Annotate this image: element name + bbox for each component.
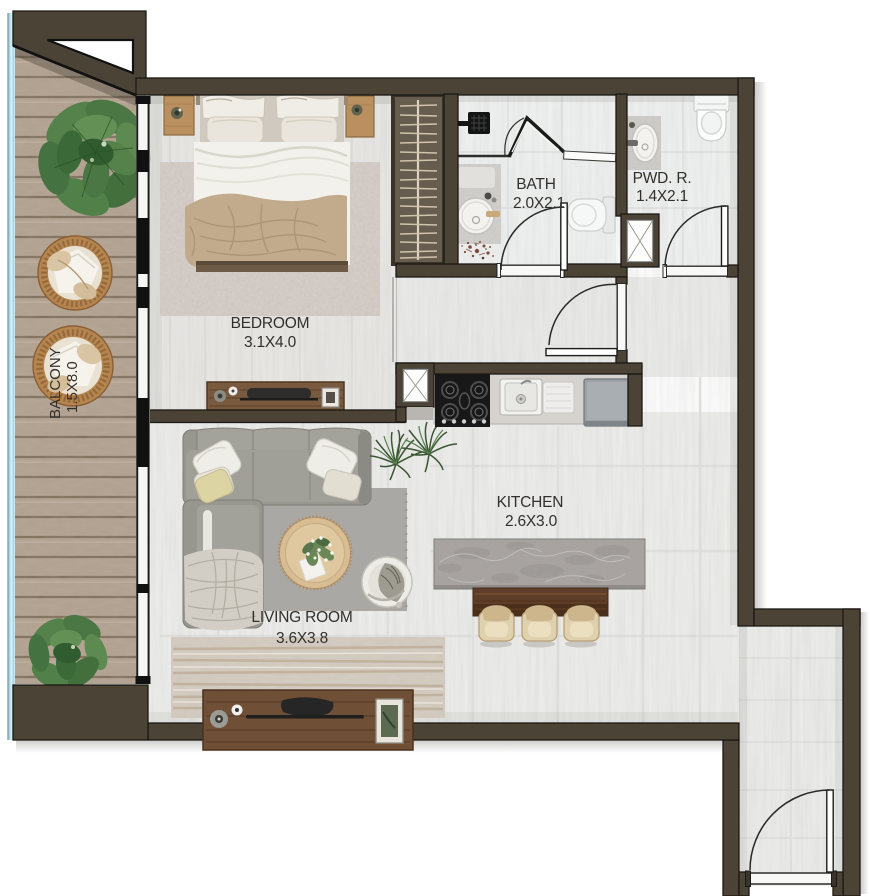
- svg-text:2.6X3.0: 2.6X3.0: [505, 513, 558, 530]
- svg-text:3.1X4.0: 3.1X4.0: [244, 334, 297, 351]
- svg-text:PWD. R.: PWD. R.: [633, 170, 692, 187]
- svg-text:BEDROOM: BEDROOM: [231, 315, 310, 332]
- svg-text:1.5X8.0: 1.5X8.0: [64, 361, 81, 413]
- svg-text:1.4X2.1: 1.4X2.1: [636, 188, 688, 205]
- svg-text:BATH: BATH: [516, 176, 555, 193]
- svg-text:3.6X3.8: 3.6X3.8: [276, 630, 328, 647]
- svg-text:2.0X2.1: 2.0X2.1: [513, 195, 565, 212]
- svg-text:KITCHEN: KITCHEN: [497, 494, 564, 511]
- svg-text:LIVING ROOM: LIVING ROOM: [251, 609, 352, 626]
- svg-text:BALCONY: BALCONY: [47, 347, 64, 419]
